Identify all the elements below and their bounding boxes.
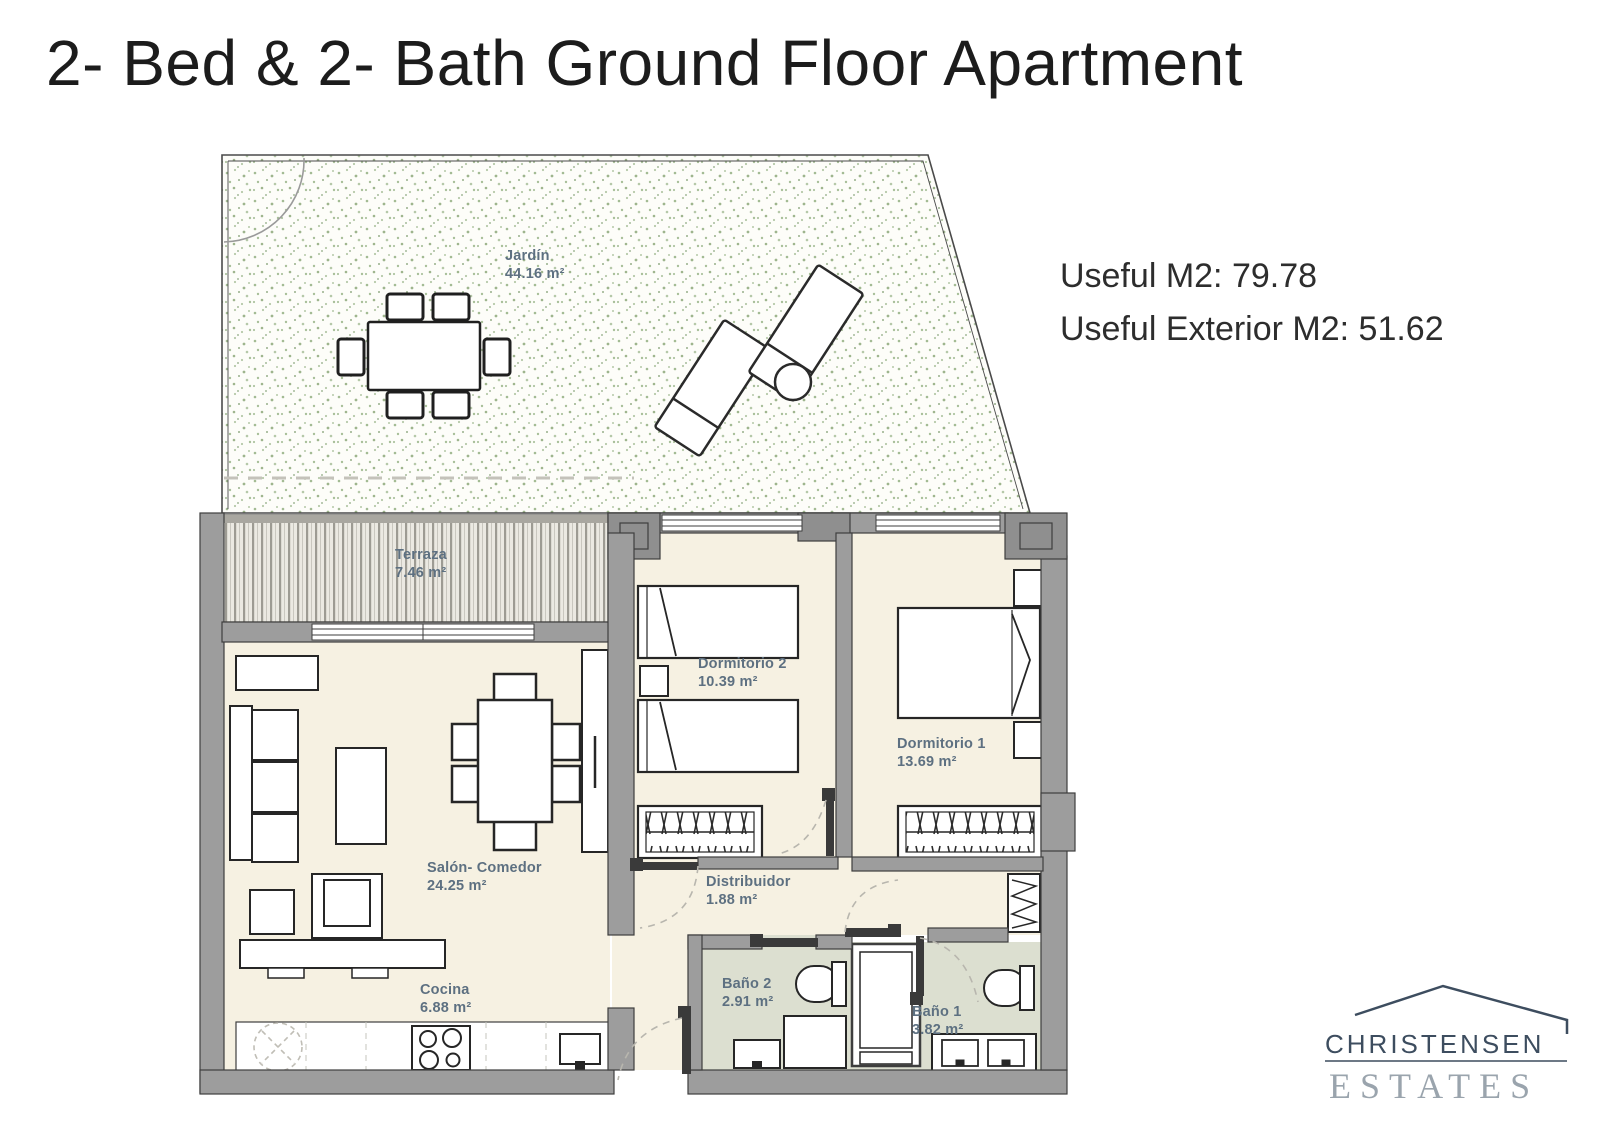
garden-chair (433, 294, 469, 320)
dining-chair (452, 724, 480, 760)
wall-dorm1-bath (852, 857, 1043, 871)
garden-chair (484, 339, 510, 375)
dining-table (478, 700, 552, 822)
dining-chair (552, 724, 580, 760)
wall-bottom (200, 1070, 614, 1094)
coffee-table (336, 748, 386, 844)
wall-dorm2-hall (698, 857, 838, 869)
window-living-sliding (312, 624, 534, 640)
side-table (250, 890, 294, 934)
toilet-icon (796, 962, 846, 1006)
room-label-salon: Salón- Comedor 24.25 m² (427, 860, 542, 895)
page: 2- Bed & 2- Bath Ground Floor Apartment … (0, 0, 1600, 1131)
sofa (230, 706, 298, 862)
wall-bath1-top (928, 928, 1008, 942)
room-label-bano2: Baño 2 2.91 m² (722, 976, 773, 1011)
armchair (312, 874, 382, 938)
room-label-cocina: Cocina 6.88 m² (420, 982, 471, 1017)
garden-side-table (775, 364, 811, 400)
christensen-estates-logo: CHRISTENSEN ESTATES (1285, 960, 1585, 1110)
dining-chair (494, 820, 536, 850)
wardrobe (898, 806, 1042, 858)
dining-chair (452, 766, 480, 802)
terraza-edge (222, 515, 608, 523)
wall-left (200, 513, 224, 1093)
garden-chair (387, 392, 423, 418)
wardrobe (638, 806, 762, 858)
towel-radiator-icon (1008, 874, 1040, 932)
single-bed (638, 700, 798, 772)
single-bed (638, 586, 798, 658)
wall-right-bump (1041, 793, 1075, 851)
window-dorm2 (662, 515, 802, 531)
shower-tray (784, 1016, 846, 1068)
wall-living-bedrooms (608, 533, 634, 935)
garden-chair (433, 392, 469, 418)
room-label-dormitorio2: Dormitorio 2 10.39 m² (698, 656, 787, 691)
wall-bedroom-divider (836, 533, 852, 857)
room-label-distribuidor: Distribuidor 1.88 m² (706, 874, 791, 909)
sink-icon (560, 1034, 600, 1069)
room-label-dormitorio1: Dormitorio 1 13.69 m² (897, 736, 986, 771)
room-label-bano1: Baño 1 3.82 m² (912, 1004, 963, 1039)
garden-chair (387, 294, 423, 320)
wall-pillar (1005, 513, 1067, 559)
room-label-jardin: Jardín 44.16 m² (505, 248, 565, 283)
toilet-icon (984, 966, 1034, 1010)
bathroom-sink-icon (734, 1040, 780, 1068)
shower (852, 944, 920, 1066)
vanity-double-sink (932, 1034, 1036, 1072)
hob-icon (412, 1026, 470, 1070)
window-dorm1 (876, 515, 1000, 531)
double-bed (898, 608, 1040, 718)
logo-name: CHRISTENSEN (1325, 1029, 1544, 1059)
tall-cabinet (582, 650, 608, 852)
wall-entrance-stub (608, 1008, 634, 1070)
wall-bath2-top (816, 935, 852, 949)
wall-bottom (688, 1070, 1067, 1094)
kitchen-counter (236, 1022, 612, 1072)
dining-chair (552, 766, 580, 802)
logo-subname: ESTATES (1329, 1066, 1539, 1106)
nightstand (640, 666, 668, 696)
room-label-terraza: Terraza 7.46 m² (395, 547, 447, 582)
sideboard (236, 656, 318, 690)
nightstand (1014, 570, 1042, 606)
garden-area (222, 155, 1030, 513)
logo-roof-icon (1355, 986, 1567, 1034)
garden-table (368, 322, 480, 390)
garden-chair (338, 339, 364, 375)
nightstand (1014, 722, 1042, 758)
